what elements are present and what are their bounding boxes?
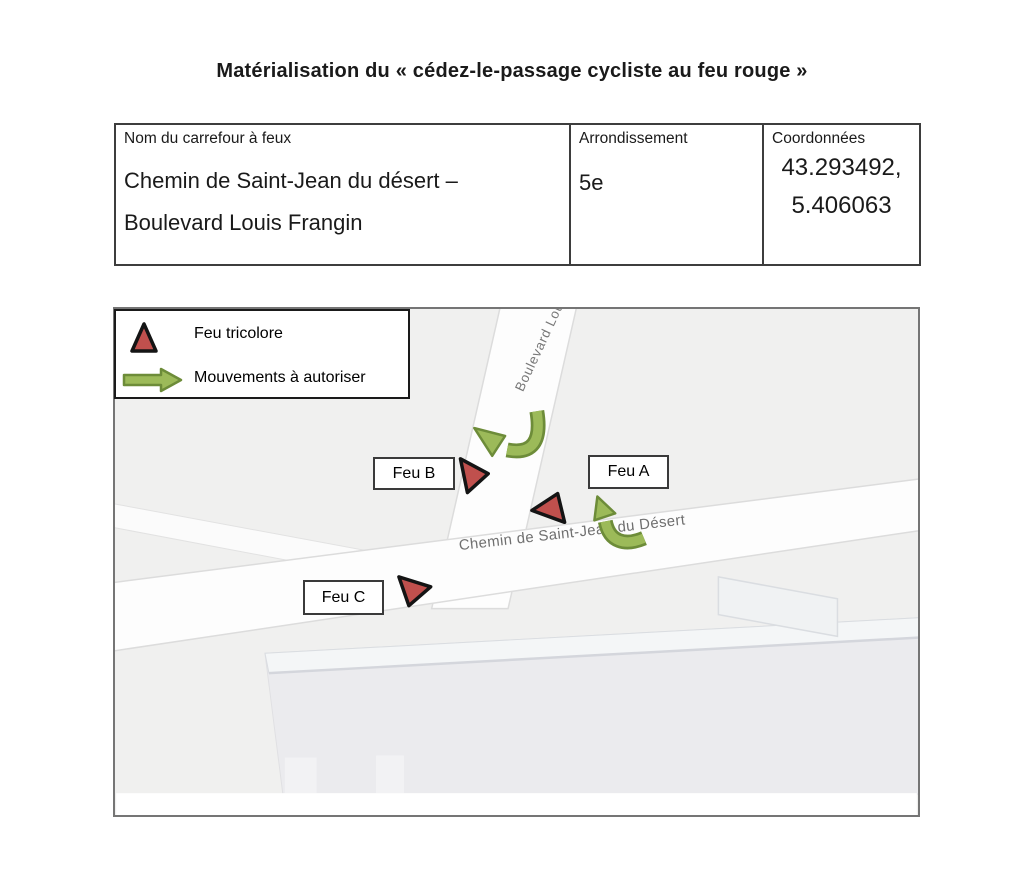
intersection-name-line2: Boulevard Louis Frangin (124, 202, 561, 244)
page-title: Matérialisation du « cédez-le-passage cy… (0, 60, 1024, 83)
map-legend: Feu tricolore Mouvements à autoriser (114, 309, 410, 399)
coordinates-lon: 5.406063 (772, 187, 911, 225)
movement-arrow-icon (122, 366, 184, 394)
intersection-info-table: Nom du carrefour à feux Chemin de Saint-… (114, 123, 921, 266)
arrondissement-value: 5e (579, 162, 754, 204)
column-header-coordonnees: Coordonnées (772, 129, 911, 148)
column-header-carrefour: Nom du carrefour à feux (124, 129, 561, 148)
cell-intersection-name: Nom du carrefour à feux Chemin de Saint-… (115, 124, 570, 265)
legend-item-feu: Feu tricolore (116, 317, 408, 357)
intersection-name-line1: Chemin de Saint-Jean du désert – (124, 160, 561, 202)
label-box-feu-c: Feu C (303, 580, 384, 615)
table-row: Nom du carrefour à feux Chemin de Saint-… (115, 124, 920, 265)
building-detail (376, 755, 404, 793)
legend-item-mouvements: Mouvements à autoriser (116, 361, 408, 401)
column-header-arrondissement: Arrondissement (579, 129, 754, 148)
label-box-feu-b: Feu B (373, 457, 455, 490)
map-figure: Boulevard Lou Chemin de Saint-Jean du Dé… (113, 307, 920, 817)
legend-label-feu: Feu tricolore (194, 325, 283, 343)
traffic-light-triangle-icon (129, 321, 159, 354)
cell-coordinates: Coordonnées 43.293492, 5.406063 (763, 124, 920, 265)
label-box-feu-a: Feu A (588, 455, 669, 489)
cell-arrondissement: Arrondissement 5e (570, 124, 763, 265)
legend-label-mouvements: Mouvements à autoriser (194, 369, 366, 387)
map-white-strip (116, 793, 917, 815)
coordinates-lat: 43.293492, (772, 149, 911, 187)
building-detail (285, 757, 317, 793)
document-page: Matérialisation du « cédez-le-passage cy… (0, 0, 1024, 880)
